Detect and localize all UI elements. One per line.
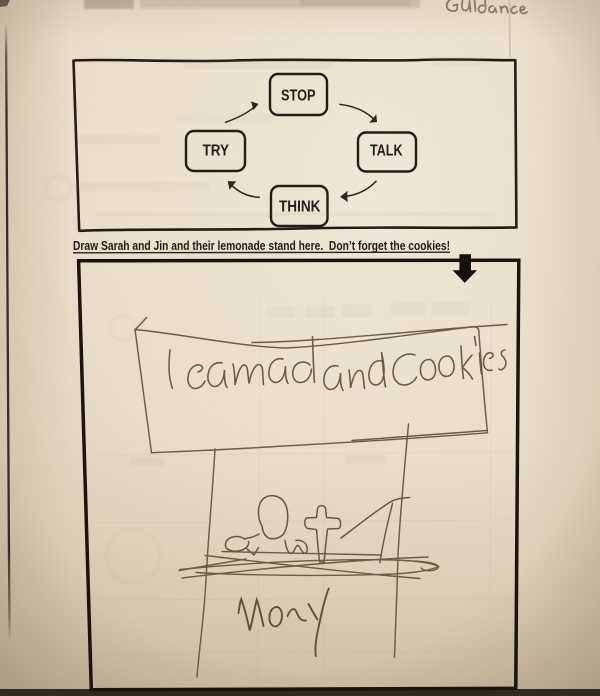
svg-text:TRY: TRY — [203, 143, 230, 160]
svg-text:STOP: STOP — [281, 87, 316, 104]
svg-text:Draw Sarah and Jin and their l: Draw Sarah and Jin and their lemonade st… — [73, 239, 450, 253]
svg-text:TALK: TALK — [370, 142, 403, 159]
